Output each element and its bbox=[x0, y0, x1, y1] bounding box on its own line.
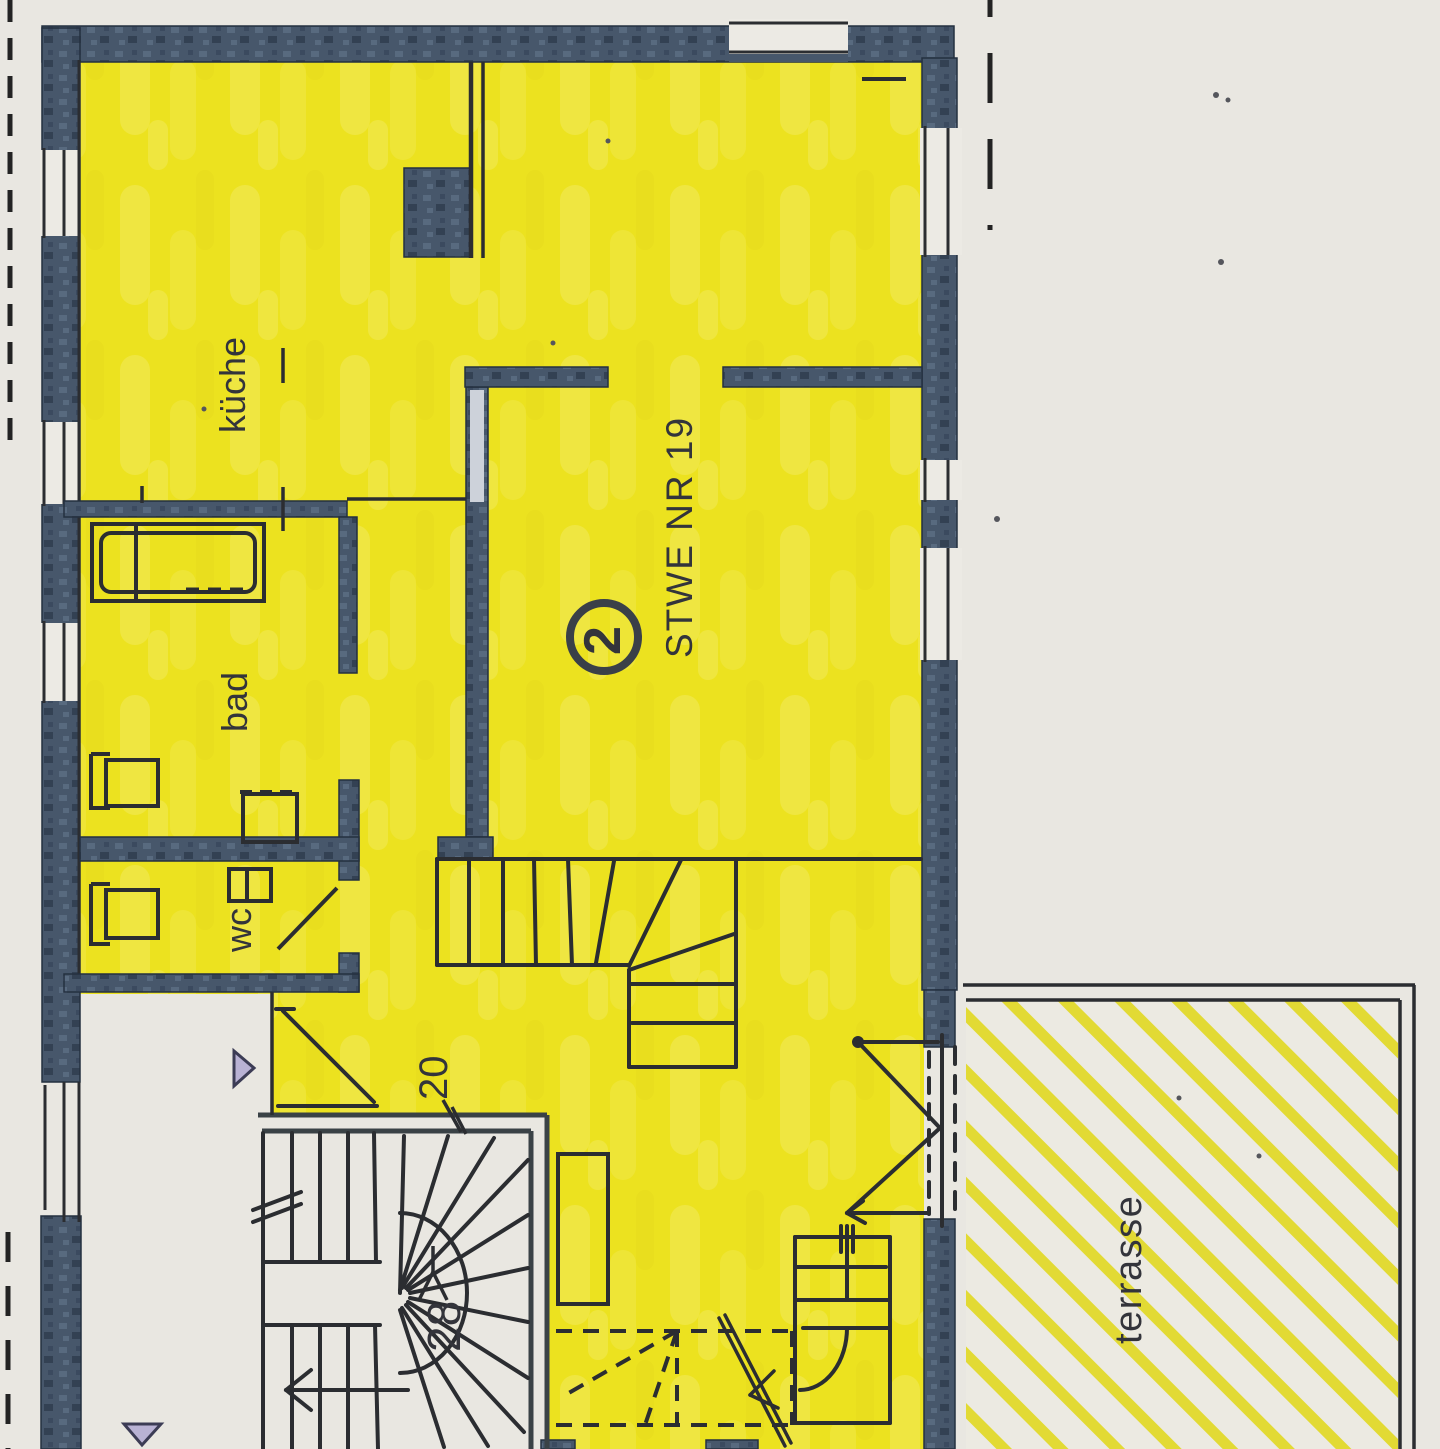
svg-text:20: 20 bbox=[412, 1056, 456, 1101]
svg-text:bad: bad bbox=[214, 672, 255, 732]
svg-text:STWE NR 19: STWE NR 19 bbox=[659, 416, 700, 658]
svg-text:28: 28 bbox=[418, 1301, 470, 1352]
svg-text:terrasse: terrasse bbox=[1108, 1195, 1150, 1344]
svg-text:2: 2 bbox=[574, 626, 632, 655]
svg-text:wc: wc bbox=[218, 908, 259, 953]
svg-text:küche: küche bbox=[212, 337, 253, 433]
